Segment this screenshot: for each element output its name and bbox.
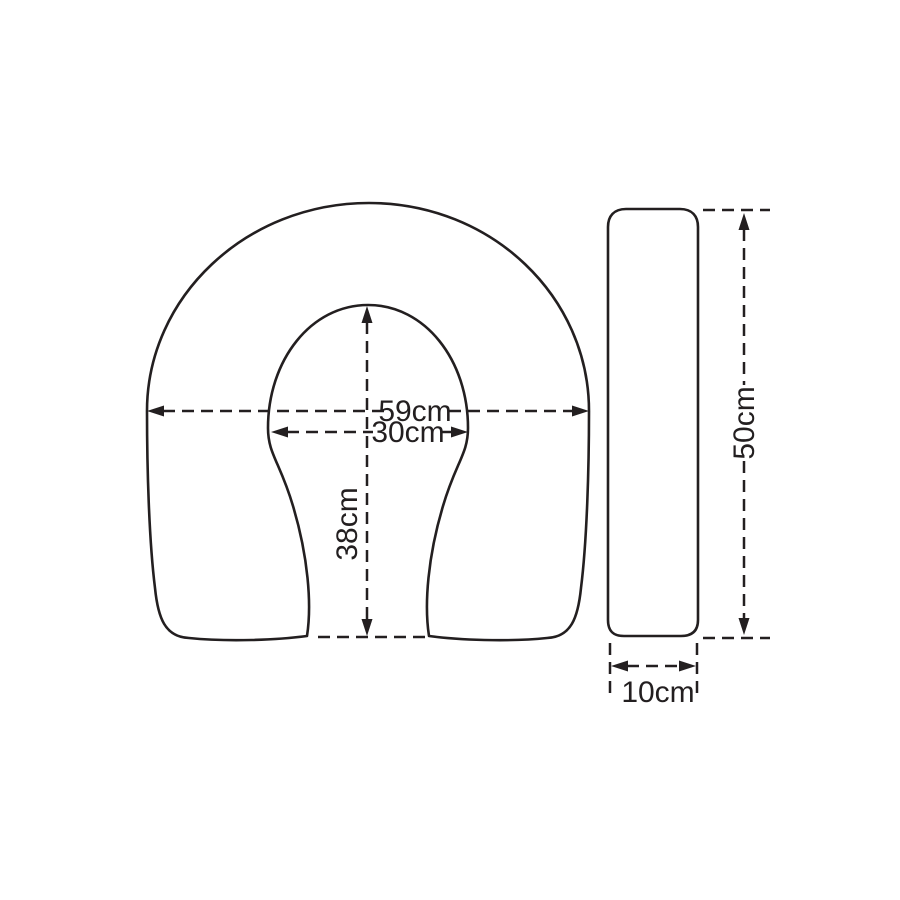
front-view: 59cm 30cm 38cm xyxy=(147,203,589,640)
dim-inner-width-label: 30cm xyxy=(371,416,444,449)
dim-height-label: 50cm xyxy=(728,386,761,459)
dimension-diagram-page: 59cm 30cm 38cm xyxy=(0,0,900,900)
dim-inner-depth-arrow-bottom xyxy=(362,619,373,636)
dim-height: 50cm xyxy=(703,210,770,638)
dim-inner-width-arrow-right xyxy=(451,427,468,438)
cushion-side-outline xyxy=(608,209,698,636)
dim-inner-depth-label: 38cm xyxy=(331,487,364,560)
dim-inner-width: 30cm xyxy=(271,416,468,449)
dim-thickness-label: 10cm xyxy=(621,676,694,709)
dim-inner-depth: 38cm xyxy=(318,306,428,637)
dim-thickness-arrow-left xyxy=(611,661,628,672)
side-view: 50cm 10cm xyxy=(608,209,770,709)
dim-thickness: 10cm xyxy=(610,643,697,709)
dim-inner-depth-arrow-top xyxy=(362,306,373,323)
dim-height-arrow-bottom xyxy=(739,618,750,635)
dim-thickness-arrow-right xyxy=(679,661,696,672)
cushion-dimension-diagram: 59cm 30cm 38cm xyxy=(0,0,900,900)
dim-inner-width-arrow-left xyxy=(271,427,288,438)
dim-height-arrow-top xyxy=(739,213,750,230)
